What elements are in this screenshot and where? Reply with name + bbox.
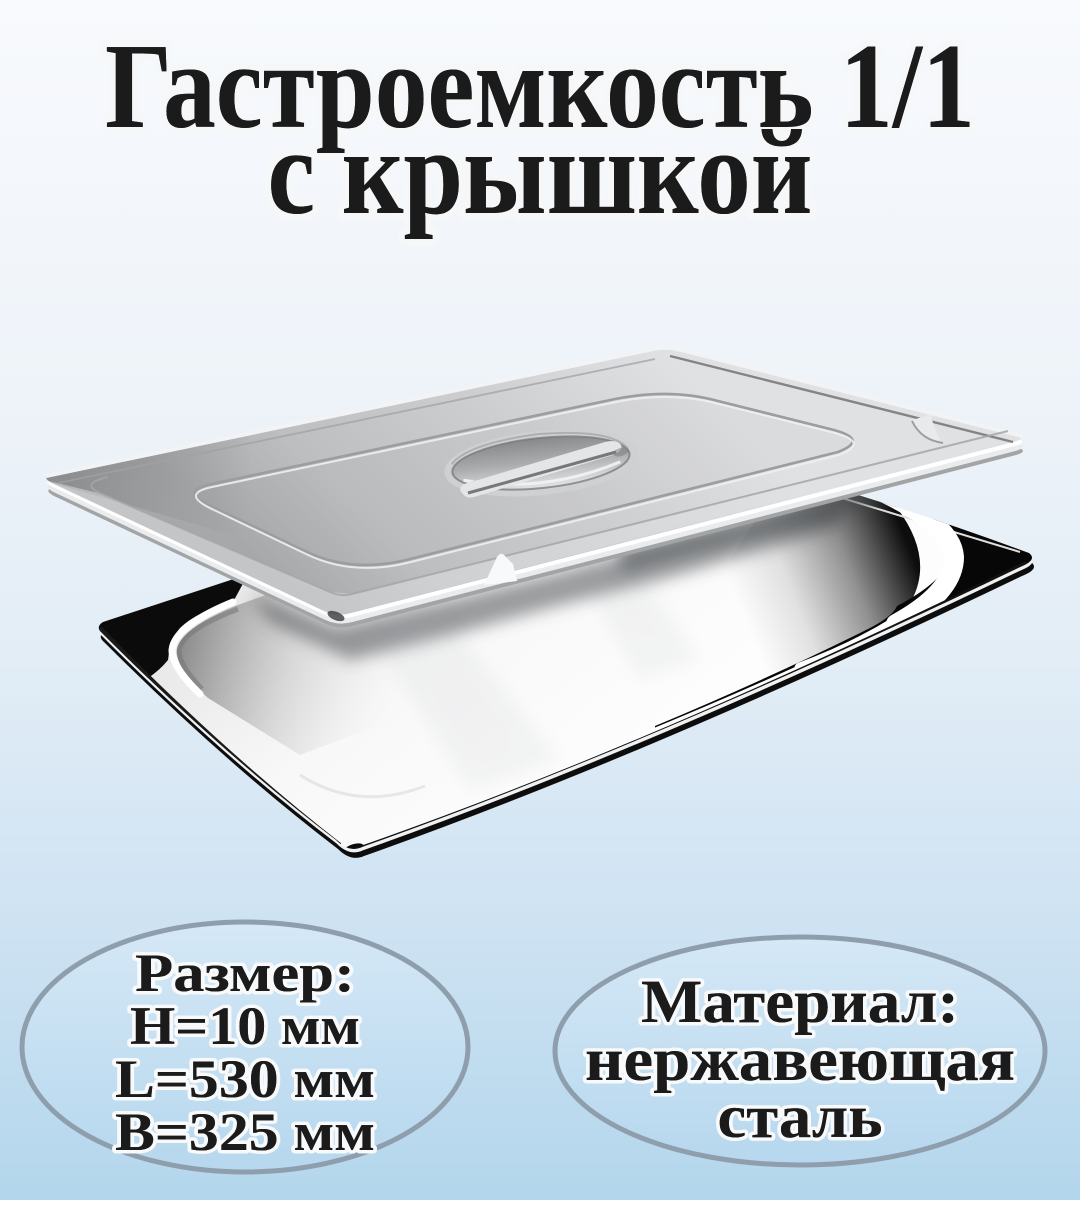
svg-text:Материал:: Материал: — [641, 969, 959, 1036]
svg-text:Размер:: Размер: — [135, 943, 355, 1003]
svg-text:B=325 мм: B=325 мм — [115, 1102, 375, 1162]
svg-text:с крышкой: с крышкой — [268, 105, 813, 240]
svg-text:сталь: сталь — [718, 1084, 883, 1151]
svg-text:H=10 мм: H=10 мм — [130, 996, 360, 1056]
svg-text:L=530 мм: L=530 мм — [115, 1049, 375, 1109]
